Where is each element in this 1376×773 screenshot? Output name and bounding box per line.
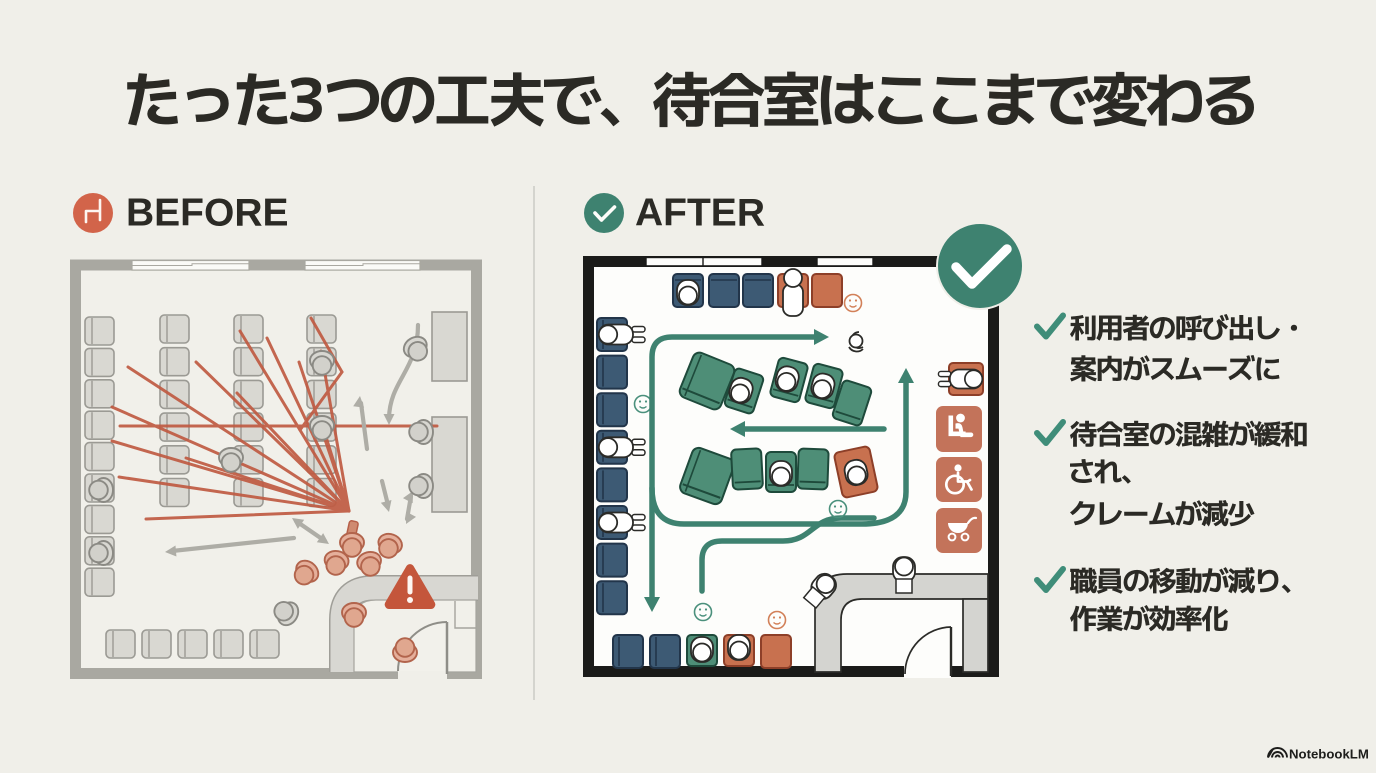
svg-text:AFTER: AFTER <box>635 192 765 235</box>
svg-text:NotebookLM: NotebookLM <box>1289 747 1369 762</box>
svg-text:BEFORE: BEFORE <box>126 192 289 235</box>
